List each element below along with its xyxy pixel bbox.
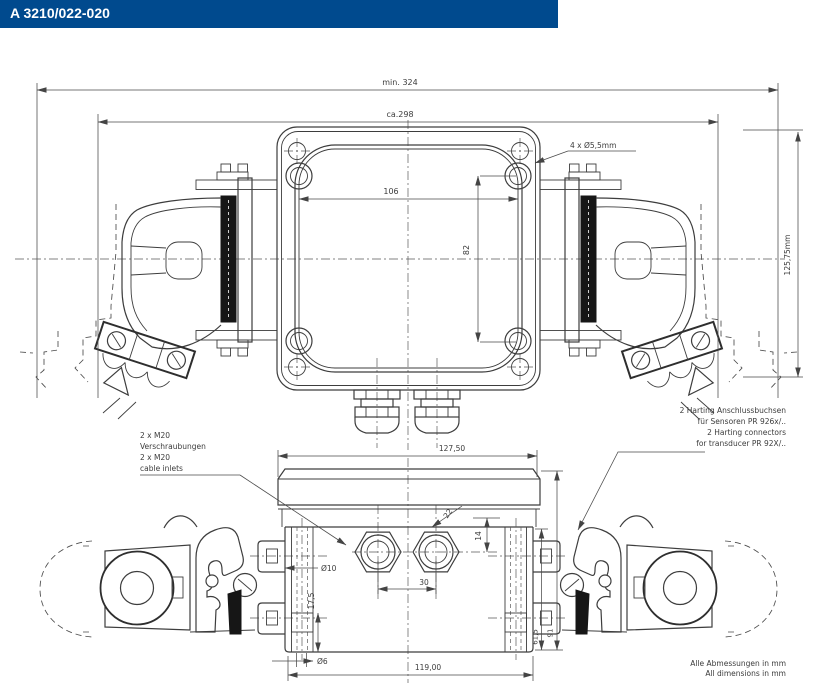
page: A 3210/022-020 (0, 0, 817, 687)
dim-pocket-depth: 17,5 (307, 592, 316, 609)
callout-corner-holes: 4 x Ø5,5mm (570, 141, 616, 150)
mount-hole (284, 138, 310, 164)
tab-hole-centerlines (250, 556, 568, 618)
dim-lid-width: 127,50 (439, 444, 465, 453)
dim-height-inner: 61,5 (532, 629, 540, 645)
dim-gland-offset: 14 (474, 531, 483, 541)
mount-hole (507, 138, 533, 164)
mount-hole (284, 354, 310, 380)
dim-bottom-hole: Ø6 (317, 657, 328, 666)
front-view (40, 458, 777, 683)
dim-approx-width: ca.298 (386, 110, 413, 119)
mounting-tabs (258, 541, 560, 634)
enclosure-outline (277, 127, 540, 390)
dim-height-outer: 91 (547, 629, 555, 638)
top-view (15, 120, 797, 450)
label-line: 2 Harting connectors (707, 428, 786, 437)
dim-box-height: 125,75mm (783, 235, 792, 276)
technical-drawing: min. 324 ca.298 125,75mm 106 82 4 x Ø5,5… (0, 0, 817, 687)
harting-connector-label: 2 Harting Anschlussbuchsen für Sensoren … (578, 406, 786, 530)
note-line: Alle Abmessungen in mm (690, 659, 786, 668)
harting-connector-right-front-view (561, 516, 778, 637)
mount-hole (507, 354, 533, 380)
dim-hole-spacing-v: 82 (462, 245, 471, 255)
harting-connector-left-front-view (40, 516, 257, 637)
label-line: for transducer PR 92X/.. (696, 439, 786, 448)
dim-hole-spacing-h: 106 (383, 187, 398, 196)
dim-min-overall-width: min. 324 (382, 78, 417, 87)
enclosure-front-outline (278, 469, 540, 652)
label-line: 2 Harting Anschlussbuchsen (680, 406, 787, 415)
label-line: 2 x M20 (140, 453, 170, 462)
dimensions-note: Alle Abmessungen in mm All dimensions in… (690, 659, 786, 678)
cable-inlet-label: 2 x M20 Verschraubungen 2 x M20 cable in… (140, 431, 346, 545)
label-line: cable inlets (140, 464, 183, 473)
dim-gland-spacing: 30 (419, 578, 429, 587)
note-line: All dimensions in mm (705, 669, 786, 678)
dim-tab-hole: Ø10 (321, 564, 337, 573)
label-line: 2 x M20 (140, 431, 170, 440)
label-line: für Sensoren PR 926x/.. (698, 417, 786, 426)
harting-connector-left-top-view (20, 164, 277, 419)
harting-connector-right-top-view (540, 164, 797, 419)
dim-body-width: 119,00 (415, 663, 441, 672)
label-line: Verschraubungen (140, 442, 206, 451)
